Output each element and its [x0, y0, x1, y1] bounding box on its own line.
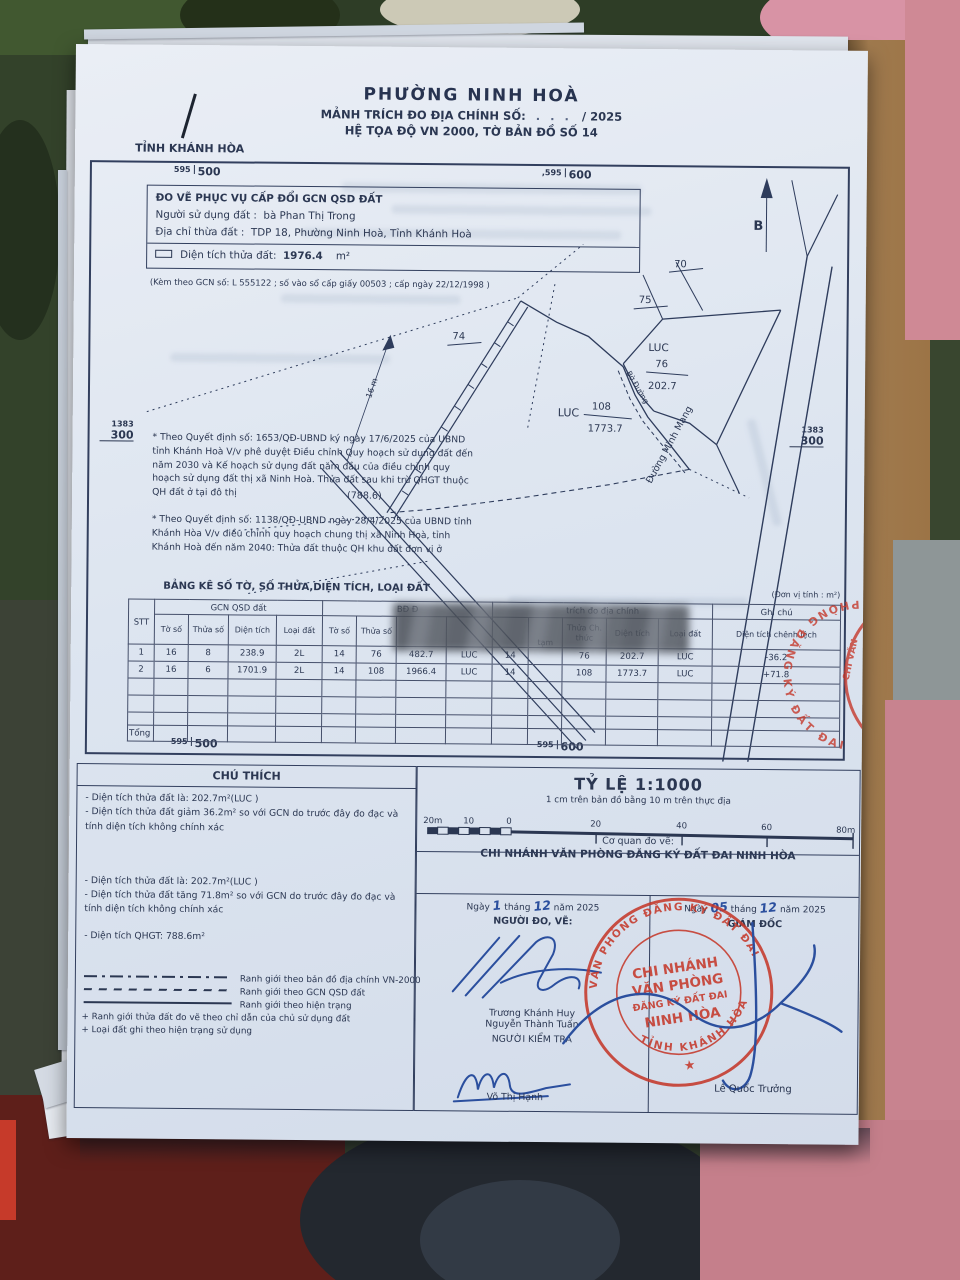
parcel-75-label: 75: [639, 295, 652, 306]
area-line: Diện tích thửa đất: 1976.4 m²: [147, 243, 639, 268]
parcel-symbol-icon: [155, 250, 172, 258]
pink-tile-right: [905, 0, 960, 340]
decision-notes: * Theo Quyết định số: 1653/QĐ-UBND ký ng…: [151, 431, 478, 570]
svg-text:60: 60: [761, 823, 772, 833]
legend-line-item: Ranh giới theo bản đồ địa chính VN-2000: [84, 973, 414, 986]
parcel-76-number: 76: [655, 359, 668, 370]
legend-line-item: Ranh giới theo hiện trạng: [84, 999, 414, 1012]
parcel-70-label: 70: [674, 259, 687, 270]
group-header-gcn: GCN QSD đất: [155, 599, 323, 615]
svg-text:80m: 80m: [836, 826, 855, 836]
north-label: B: [753, 219, 763, 234]
legend-line-item: Ranh giới theo GCN QSD đất: [84, 986, 414, 999]
legend-plus-note: + Loại đất ghi theo hiện trạng sử dụng: [81, 1025, 413, 1038]
col-header-stt: STT: [128, 599, 154, 644]
legend-box: CHÚ THÍCH - Diện tích thửa đất là: 202.7…: [74, 763, 417, 1111]
sheet-edge: [58, 170, 67, 1050]
svg-text:10: 10: [463, 816, 474, 826]
subtitle-dots: . . .: [536, 109, 572, 123]
subtitle-label: MẢNH TRÍCH ĐO ĐỊA CHÍNH SỐ:: [321, 107, 526, 123]
col-header: Diện tích: [228, 615, 276, 645]
col-header: Tờ số: [154, 614, 188, 644]
col-header: Loại đất: [276, 615, 322, 645]
subtitle-year: / 2025: [582, 109, 622, 123]
handwritten-month: 12: [533, 897, 552, 914]
legend-note: - Diện tích thửa đất tăng 71.8m² so với …: [84, 888, 406, 919]
scale-signature-box: TỶ LỆ 1:1000 1 cm trên bản đồ bằng 10 m …: [414, 766, 861, 1115]
partial-stamp: PHÒNG ĐĂNG KÝ ĐẤT ĐAI CHI VĂN: [770, 590, 866, 761]
legend-note: - Diện tích QHGT: 788.6m²: [84, 929, 406, 946]
svg-text:40: 40: [676, 821, 687, 831]
solid-line-sample: [84, 1001, 232, 1004]
province-label: TỈNH KHÁNH HÒA: [135, 142, 244, 156]
svg-text:0: 0: [506, 817, 512, 827]
address-line: Địa chỉ thừa đất : TDP 18, Phường Ninh H…: [155, 224, 631, 245]
scale-title: TỶ LỆ 1:1000: [417, 773, 859, 796]
doc-header: PHƯỜNG NINH HOÀ MẢNH TRÍCH ĐO ĐỊA CHÍNH …: [75, 82, 867, 142]
handwritten-day: 1: [492, 897, 502, 913]
photo-of-document: PHƯỜNG NINH HOÀ MẢNH TRÍCH ĐO ĐỊA CHÍNH …: [0, 0, 960, 1280]
legend-note: - Diện tích thửa đất giảm 36.2m² so với …: [85, 805, 407, 836]
redaction-blur: [393, 603, 689, 654]
parcel-74-label: 74: [452, 331, 465, 342]
table-title: BẢNG KÊ SỐ TỜ, SỐ THỬA,DIỆN TÍCH, LOẠI Đ…: [163, 581, 430, 594]
col-header: Thửa số: [188, 615, 228, 645]
col-header: Tờ số: [322, 616, 356, 646]
col-header: Thửa số: [356, 616, 396, 646]
director-signature: [545, 913, 857, 1106]
page-title: PHƯỜNG NINH HOÀ: [75, 82, 867, 109]
note-2: * Theo Quyết định số: 1138/QĐ-UBND ngày …: [152, 513, 478, 557]
scale-subtitle: 1 cm trên bản đồ bằng 10 m trên thực địa: [417, 794, 859, 808]
owner-info-box: ĐO VẼ PHỤC VỤ CẤP ĐỔI GCN QSD ĐẤT Người …: [146, 185, 641, 273]
director-name: Lê Quốc Trưởng: [658, 1083, 848, 1096]
scale-bar: 20m 10 0 20 40 60 80m: [423, 813, 855, 851]
parcel-76-code: LUC: [648, 342, 668, 354]
note-1: * Theo Quyết định số: 1653/QĐ-UBND ký ng…: [152, 431, 479, 503]
red-object: [0, 1120, 16, 1220]
gray-tile-right: [893, 540, 960, 700]
dashdot-line-sample: [84, 975, 232, 978]
parcel-76-area: 202.7: [648, 381, 677, 392]
legend-title: CHÚ THÍCH: [78, 764, 416, 789]
width-label: 16 m: [364, 377, 379, 400]
svg-text:20m: 20m: [423, 816, 442, 826]
dashed-line-sample: [84, 988, 232, 991]
legend-plus-note: + Ranh giới thửa đất đo vẽ theo chỉ dẫn …: [81, 1012, 413, 1025]
parcel-108-code: LUC: [558, 406, 580, 419]
paper: PHƯỜNG NINH HOÀ MẢNH TRÍCH ĐO ĐỊA CHÍNH …: [66, 44, 868, 1145]
pink-tile-right-low: [885, 700, 960, 1130]
partial-stamp-inner-text: CHI VĂN: [840, 638, 861, 682]
parcel-108-area: 1773.7: [588, 423, 623, 434]
parcel-108-number: 108: [592, 402, 611, 413]
north-arrow-icon: [761, 178, 773, 198]
svg-text:20: 20: [590, 820, 601, 830]
